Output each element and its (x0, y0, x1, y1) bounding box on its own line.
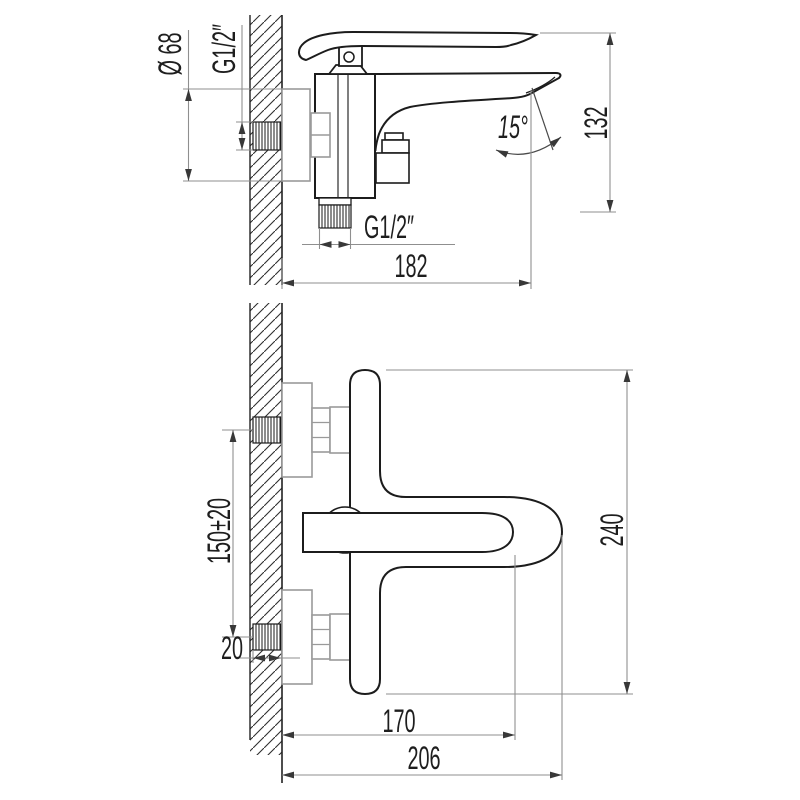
label-flange-diameter: Ø 68 (152, 32, 188, 75)
shower-outlet-side (319, 198, 351, 228)
diverter-knob (382, 140, 409, 153)
union-sleeve (330, 407, 351, 453)
escutcheon (282, 590, 312, 684)
side-view: Ø 68 G1/2″ 15° 132 182 G1/2″ (152, 15, 616, 289)
union-sleeve (330, 614, 351, 660)
label-reach-206: 206 (407, 740, 440, 776)
lever-handle-side (299, 32, 536, 60)
label-outlet-thread: G1/2″ (364, 209, 414, 245)
label-height-132: 132 (578, 106, 614, 139)
technical-drawing-page: Ø 68 G1/2″ 15° 132 182 G1/2″ (0, 0, 800, 800)
union-hex-nut (312, 615, 330, 659)
bath-mixer-installation-drawing: Ø 68 G1/2″ 15° 132 182 G1/2″ (0, 0, 800, 800)
front-view: 150±20 20 240 170 206 (201, 303, 633, 783)
wall-hatch (250, 303, 282, 755)
label-wall-thread: G1/2″ (206, 24, 242, 74)
wall-section-front (250, 303, 282, 783)
outlet-thread (319, 205, 351, 228)
label-spout-angle: 15° (498, 109, 528, 145)
diverter-knob-lip (385, 133, 403, 140)
label-inlet-centers: 150±20 (201, 498, 237, 564)
label-reach-182: 182 (394, 248, 427, 284)
diverter-side (376, 133, 409, 183)
escutcheon (282, 383, 312, 477)
inlet-thread (253, 417, 281, 443)
escutcheon-side (282, 89, 310, 181)
label-projection-20: 20 (221, 630, 243, 666)
inlet-union-side (311, 113, 330, 157)
set-screw-hole (344, 52, 354, 62)
label-reach-170: 170 (382, 703, 415, 739)
union-hex-nut (312, 408, 330, 452)
inlet-thread-side (253, 122, 281, 150)
lever-handle-front (303, 513, 513, 552)
inlet-thread (253, 624, 281, 650)
outlet-collar (319, 198, 351, 205)
diverter-housing (376, 153, 409, 183)
label-height-240: 240 (594, 513, 630, 546)
